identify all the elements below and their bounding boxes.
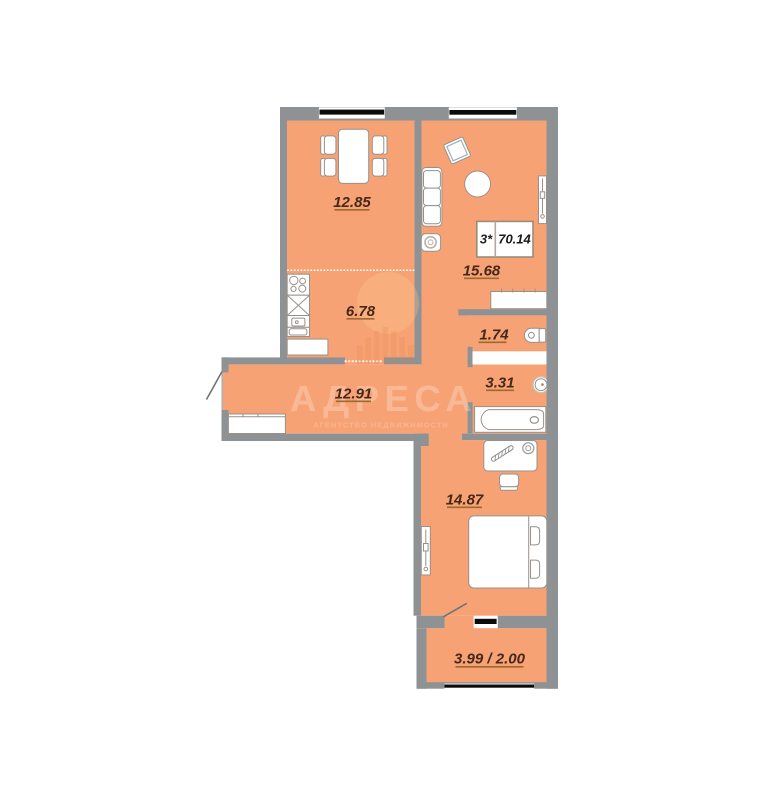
svg-text:70.14: 70.14 (498, 232, 531, 247)
svg-text:3*: 3* (480, 232, 493, 247)
svg-text:3.31: 3.31 (485, 375, 514, 392)
svg-text:АДРЕСА: АДРЕСА (290, 378, 477, 419)
svg-text:12.85: 12.85 (333, 194, 371, 211)
svg-text:14.87: 14.87 (446, 492, 484, 509)
svg-text:АГЕНТСТВО НЕДВИЖИМОСТИ: АГЕНТСТВО НЕДВИЖИМОСТИ (313, 421, 449, 430)
svg-text:12.91: 12.91 (335, 386, 373, 403)
svg-text:6.78: 6.78 (346, 303, 376, 320)
svg-text:1.74: 1.74 (479, 327, 509, 344)
svg-text:15.68: 15.68 (463, 263, 501, 280)
svg-text:3.99 / 2.00: 3.99 / 2.00 (454, 651, 526, 668)
